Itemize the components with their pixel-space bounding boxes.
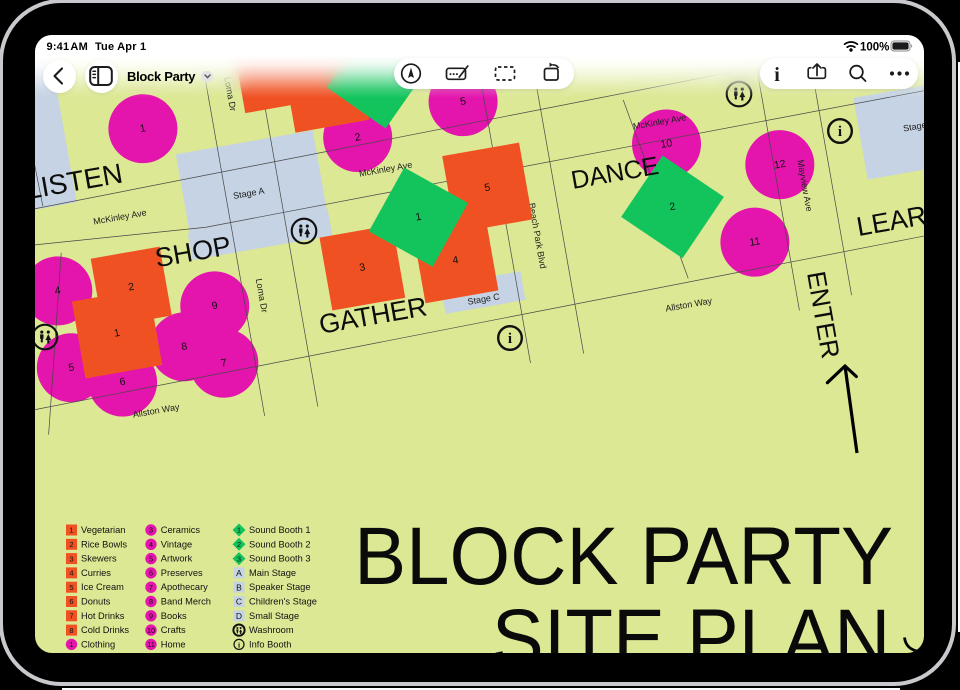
svg-text:B: B — [236, 582, 242, 592]
svg-text:1: 1 — [69, 640, 73, 649]
svg-text:8: 8 — [149, 597, 153, 606]
svg-text:Cold Drinks: Cold Drinks — [81, 625, 129, 635]
svg-text:2: 2 — [237, 540, 241, 549]
svg-text:3: 3 — [69, 554, 73, 563]
svg-text:100%: 100% — [860, 42, 889, 54]
svg-text:Sound Booth 3: Sound Booth 3 — [249, 554, 311, 564]
svg-text:LEARN: LEARN — [854, 197, 924, 242]
svg-text:Small Stage: Small Stage — [249, 611, 299, 621]
svg-text:11: 11 — [147, 640, 155, 649]
svg-text:i: i — [774, 64, 780, 86]
svg-text:Curries: Curries — [81, 568, 111, 578]
svg-text:ENTER: ENTER — [801, 269, 846, 361]
svg-text:SITE PLAN: SITE PLAN — [492, 592, 891, 653]
svg-text:Ceramics: Ceramics — [161, 525, 201, 535]
svg-text:10: 10 — [660, 137, 674, 151]
svg-text:Home: Home — [161, 639, 186, 649]
svg-text:3: 3 — [149, 526, 153, 535]
svg-text:Main Stage: Main Stage — [249, 568, 296, 578]
svg-text:1: 1 — [237, 526, 241, 535]
svg-text:Ice Cream: Ice Cream — [81, 582, 124, 592]
svg-text:A: A — [236, 568, 242, 578]
svg-text:11: 11 — [748, 235, 761, 249]
svg-text:Preserves: Preserves — [161, 568, 203, 578]
svg-text:4: 4 — [149, 540, 153, 549]
svg-text:Skewers: Skewers — [81, 554, 117, 564]
svg-text:5: 5 — [69, 583, 73, 592]
svg-text:Info Booth: Info Booth — [249, 639, 291, 649]
svg-text:i: i — [238, 640, 240, 649]
svg-text:Apothecary: Apothecary — [161, 582, 208, 592]
svg-text:Artwork: Artwork — [161, 554, 193, 564]
svg-text:SHOP: SHOP — [153, 230, 234, 273]
svg-text:Sound Booth 2: Sound Booth 2 — [249, 539, 311, 549]
svg-text:7: 7 — [149, 583, 153, 592]
svg-text:1: 1 — [69, 526, 73, 535]
svg-text:Rice Bowls: Rice Bowls — [81, 539, 127, 549]
svg-text:10: 10 — [147, 626, 155, 635]
svg-text:4: 4 — [69, 569, 73, 578]
svg-text:7: 7 — [69, 612, 73, 621]
svg-text:6: 6 — [69, 597, 73, 606]
svg-text:Sound Booth 1: Sound Booth 1 — [249, 525, 311, 535]
svg-text:Speaker Stage: Speaker Stage — [249, 582, 311, 592]
svg-text:Washroom: Washroom — [249, 625, 294, 635]
svg-text:8: 8 — [69, 626, 73, 635]
svg-text:Band Merch: Band Merch — [161, 597, 211, 607]
svg-text:9: 9 — [149, 612, 153, 621]
svg-text:Allston Way: Allston Way — [665, 295, 714, 313]
svg-text:Loma Dr: Loma Dr — [254, 278, 270, 314]
svg-text:12: 12 — [773, 158, 787, 172]
svg-text:C: C — [236, 597, 242, 607]
svg-text:i: i — [508, 331, 512, 347]
svg-text:Vegetarian: Vegetarian — [81, 525, 125, 535]
svg-text:D: D — [236, 611, 242, 621]
svg-text:Clothing: Clothing — [81, 639, 115, 649]
svg-text:Crafts: Crafts — [161, 625, 186, 635]
svg-text:McKinley Ave: McKinley Ave — [93, 207, 148, 226]
svg-text:Books: Books — [161, 611, 187, 621]
svg-text:i: i — [838, 124, 842, 140]
svg-text:BLOCK PARTY: BLOCK PARTY — [354, 510, 893, 601]
svg-text:6: 6 — [149, 569, 153, 578]
svg-text:Vintage: Vintage — [161, 539, 192, 549]
svg-text:Hot Drinks: Hot Drinks — [81, 611, 125, 621]
svg-text:Children's Stage: Children's Stage — [249, 597, 317, 607]
svg-text:Donuts: Donuts — [81, 597, 111, 607]
svg-text:3: 3 — [237, 554, 241, 563]
svg-text:5: 5 — [149, 554, 153, 563]
svg-text:2: 2 — [69, 540, 73, 549]
